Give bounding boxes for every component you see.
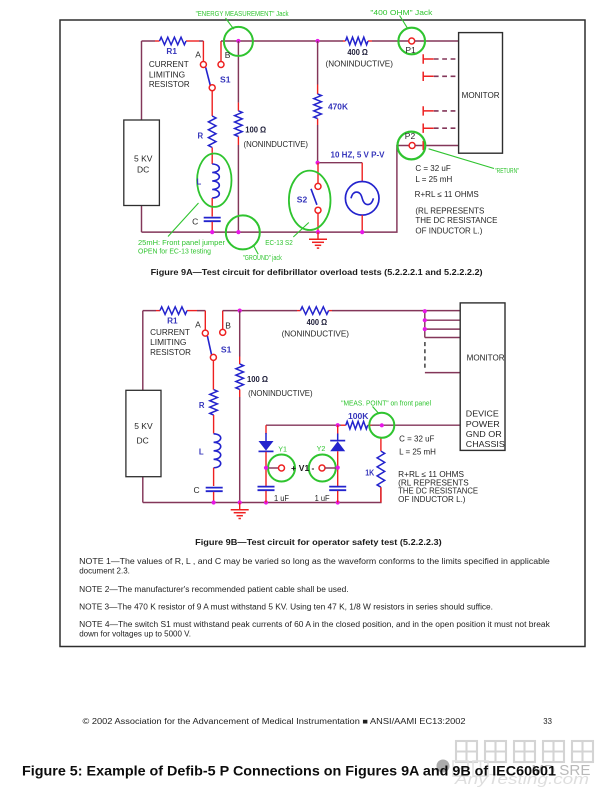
svg-text:RESISTOR: RESISTOR: [150, 347, 191, 357]
svg-text:B: B: [225, 50, 231, 60]
svg-text:document 2.3.: document 2.3.: [79, 567, 130, 576]
svg-text:CHASSIS: CHASSIS: [466, 439, 505, 449]
svg-text:R1: R1: [167, 316, 178, 325]
svg-text:"400 OHM" Jack: "400 OHM" Jack: [370, 8, 432, 17]
svg-text:GND OR: GND OR: [466, 429, 502, 439]
svg-text:1K: 1K: [365, 468, 374, 477]
svg-text:5 KV: 5 KV: [134, 421, 153, 431]
svg-text:Figure 9B—Test circuit for ope: Figure 9B—Test circuit for operator safe…: [195, 538, 442, 547]
svg-text:DC: DC: [137, 165, 149, 175]
svg-text:B: B: [225, 320, 231, 330]
svg-text:"RETURN": "RETURN": [495, 166, 519, 175]
svg-text:CURRENT: CURRENT: [150, 327, 190, 337]
svg-text:L: L: [199, 447, 204, 456]
svg-text:(NONINDUCTIVE): (NONINDUCTIVE): [248, 389, 313, 398]
svg-text:CURRENT: CURRENT: [149, 59, 189, 69]
svg-text:Y1: Y1: [278, 445, 287, 454]
svg-text:(NONINDUCTIVE): (NONINDUCTIVE): [244, 140, 309, 149]
svg-text:100K: 100K: [348, 412, 369, 421]
svg-text:DEVICE: DEVICE: [466, 409, 499, 419]
svg-text:C = 32 uF: C = 32 uF: [415, 164, 450, 173]
svg-text:THE DC RESISTANCE: THE DC RESISTANCE: [398, 486, 478, 495]
svg-text:P2: P2: [405, 131, 416, 141]
svg-text:MONITOR: MONITOR: [467, 353, 505, 363]
svg-text:(NONINDUCTIVE): (NONINDUCTIVE): [326, 60, 394, 69]
svg-text:"GROUND" jack: "GROUND" jack: [243, 253, 282, 262]
svg-text:400 Ω: 400 Ω: [307, 318, 328, 327]
svg-text:S1: S1: [220, 75, 231, 84]
svg-text:V1: V1: [299, 463, 310, 473]
svg-text:5 KV: 5 KV: [134, 154, 153, 164]
svg-text:R: R: [198, 132, 204, 141]
svg-text:R1: R1: [166, 47, 177, 56]
svg-text:L = 25 mH: L = 25 mH: [415, 175, 452, 184]
svg-text:Figure 5: Example of Defib-5: Figure 5: Example of Defib-5 P Connectio…: [22, 762, 556, 778]
svg-text:C: C: [192, 217, 198, 227]
svg-text:DC: DC: [137, 436, 149, 446]
svg-text:S1: S1: [221, 345, 232, 354]
svg-text:EC-13 S2: EC-13 S2: [265, 238, 293, 247]
svg-text:A: A: [195, 50, 201, 60]
svg-text:POWER: POWER: [466, 419, 500, 429]
svg-text:down for voltages up to 5000 V: down for voltages up to 5000 V.: [79, 630, 191, 639]
svg-text:Figure 9A—Test circuit for def: Figure 9A—Test circuit for defibrillator…: [151, 268, 483, 277]
svg-text:NOTE 2—The manufacturer's reco: NOTE 2—The manufacturer's recommended pa…: [79, 585, 348, 594]
svg-text:33: 33: [543, 717, 552, 726]
svg-text:L: L: [197, 178, 202, 187]
svg-text:P1: P1: [405, 45, 416, 55]
svg-text:© 2002 Association for the Adv: © 2002 Association for the Advancement o…: [83, 717, 466, 726]
svg-text:"MEAS. POINT" on front panel: "MEAS. POINT" on front panel: [341, 399, 431, 408]
svg-text:OF INDUCTOR L.): OF INDUCTOR L.): [415, 227, 482, 236]
svg-text:THE DC RESISTANCE: THE DC RESISTANCE: [415, 216, 497, 225]
svg-text:"ENERGY MEASUREMENT" Jack: "ENERGY MEASUREMENT" Jack: [196, 9, 289, 18]
svg-text:NOTE 1—The values of R, L , an: NOTE 1—The values of R, L , and C may be…: [79, 557, 550, 566]
svg-text:A: A: [195, 320, 201, 330]
svg-text:NOTE 3—The 470 K resistor of 9: NOTE 3—The 470 K resistor of 9 A must wi…: [79, 603, 493, 612]
svg-text:10 HZ, 5 V P-V: 10 HZ, 5 V P-V: [331, 151, 386, 160]
svg-text:(RL REPRESENTS: (RL REPRESENTS: [415, 207, 484, 216]
svg-text:-: -: [312, 463, 315, 473]
svg-text:470K: 470K: [328, 102, 348, 111]
svg-text:1 uF: 1 uF: [274, 494, 289, 503]
svg-text:C: C: [194, 485, 200, 495]
svg-text:1 uF: 1 uF: [315, 494, 330, 503]
svg-text:+: +: [291, 463, 296, 473]
svg-text:100 Ω: 100 Ω: [247, 375, 269, 384]
svg-text:RESISTOR: RESISTOR: [149, 79, 190, 89]
svg-text:Y2: Y2: [317, 444, 326, 453]
svg-text:S2: S2: [297, 195, 308, 204]
svg-text:(NONINDUCTIVE): (NONINDUCTIVE): [282, 330, 350, 339]
svg-text:100 Ω: 100 Ω: [245, 125, 267, 134]
svg-text:400 Ω: 400 Ω: [347, 48, 368, 57]
svg-text:MONITOR: MONITOR: [462, 90, 500, 100]
svg-text:C = 32 uF: C = 32 uF: [399, 435, 434, 444]
svg-text:LIMITING: LIMITING: [149, 70, 185, 80]
svg-text:OPEN for EC-13 testing: OPEN for EC-13 testing: [138, 247, 211, 256]
svg-text:LIMITING: LIMITING: [150, 337, 186, 347]
svg-text:L = 25 mH: L = 25 mH: [399, 447, 436, 456]
svg-text:OF INDUCTOR L.): OF INDUCTOR L.): [398, 495, 466, 504]
svg-text:R+RL ≤ 11 OHMS: R+RL ≤ 11 OHMS: [415, 190, 479, 199]
svg-text:NOTE 4—The switch S1 must with: NOTE 4—The switch S1 must withstand peak…: [79, 620, 551, 629]
svg-text:R: R: [199, 401, 205, 410]
